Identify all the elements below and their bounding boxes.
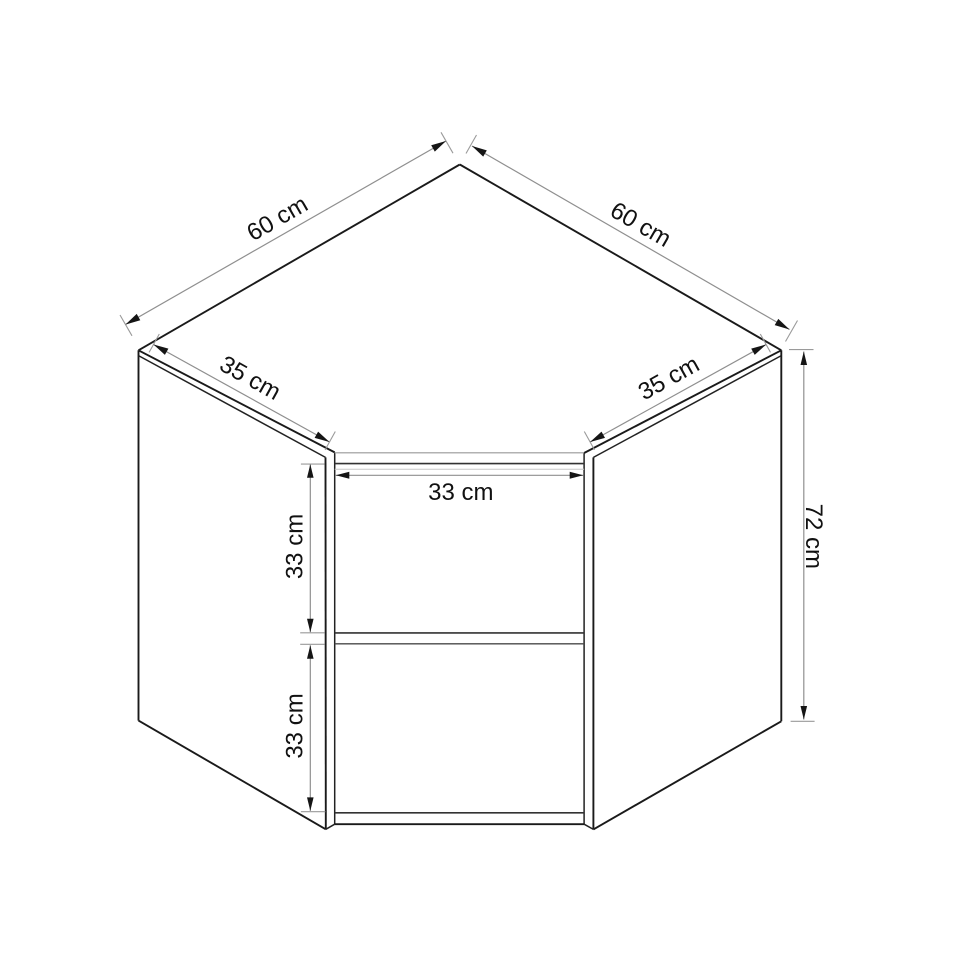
svg-text:72 cm: 72 cm [800, 504, 827, 569]
svg-text:33 cm: 33 cm [281, 514, 308, 579]
svg-text:60 cm: 60 cm [242, 191, 312, 247]
svg-text:60 cm: 60 cm [605, 197, 675, 253]
svg-text:33 cm: 33 cm [281, 693, 308, 758]
svg-text:33 cm: 33 cm [428, 479, 493, 506]
